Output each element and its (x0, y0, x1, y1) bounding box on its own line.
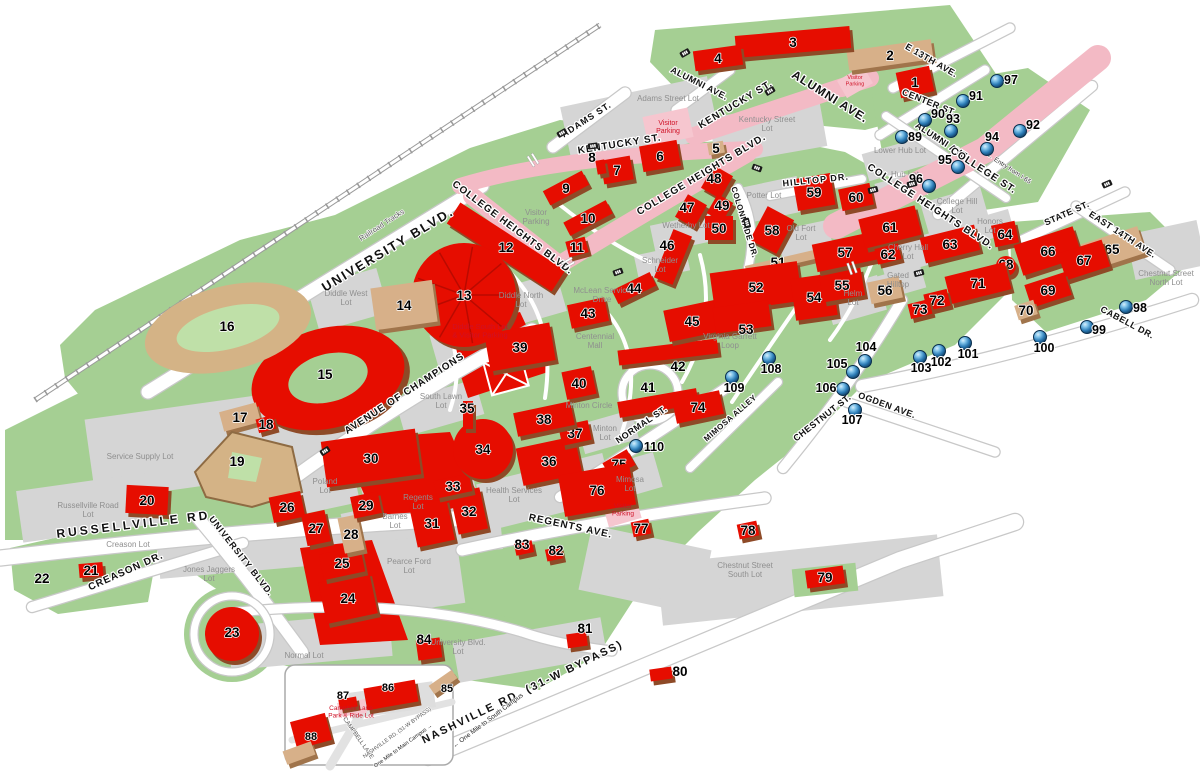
lot-label: Campbell LanePark & Ride Lot (328, 705, 374, 720)
building-number: 81 (577, 621, 593, 636)
building-number: 45 (684, 314, 700, 329)
shuttle-marker-icon (991, 75, 1004, 88)
lot-label-line: Service Supply Lot (107, 452, 174, 461)
lot-label-line: Lot (795, 233, 807, 242)
lot-label-line: Russellville Road (57, 501, 118, 510)
shuttle-marker-number: 102 (931, 355, 952, 369)
building-number: 35 (459, 401, 475, 416)
lot-label-line: Old Fort (787, 224, 817, 233)
lot-label-line: Honors (977, 217, 1003, 226)
building-number: 71 (970, 276, 986, 291)
building-number: 61 (882, 220, 898, 235)
lot-label: Wetherby Lot (662, 221, 710, 230)
lot-label-line: Park & Ride Lot (328, 713, 374, 720)
lot-label-line: Pearce Ford (387, 557, 431, 566)
lot-label-line: South Lawn (420, 392, 462, 401)
lot-label-line: Lot (203, 574, 215, 583)
building-number: 7 (613, 163, 621, 178)
building-number: 52 (748, 280, 763, 295)
building-number: 70 (1018, 303, 1033, 318)
lot-label-line: Lot (847, 298, 859, 307)
shuttle-marker-number: 104 (856, 340, 877, 354)
building-number: 67 (1076, 253, 1091, 268)
shuttle-marker-number: 101 (958, 347, 979, 361)
shuttle-marker-98[interactable]: 98 (1120, 301, 1147, 316)
lot-label-line: Lot (452, 647, 464, 656)
building-number: 41 (640, 380, 656, 395)
lot-label-line: Lot (340, 298, 352, 307)
lot-label-line: Creason Lot (106, 540, 150, 549)
building-number: 87 (337, 690, 349, 702)
building-number: 82 (548, 543, 563, 558)
lot-label-line: Lot (389, 521, 401, 530)
building-number: 3 (789, 35, 797, 50)
shuttle-marker-110[interactable]: 110 (630, 440, 665, 455)
building-22[interactable]: 22 (34, 571, 49, 586)
building-number: 12 (498, 240, 513, 255)
lot-label-line: Diddle West (325, 289, 369, 298)
building-number: 11 (570, 240, 585, 255)
building-number: 23 (224, 625, 240, 640)
building-number: 73 (912, 302, 928, 317)
shuttle-marker-number: 108 (761, 362, 782, 376)
lot-label: Adams Street Lot (637, 94, 700, 103)
lot-label-line: Gated (887, 271, 909, 280)
building-number: 85 (441, 683, 453, 695)
shuttle-marker-89[interactable]: 89 (896, 130, 922, 144)
shuttle-marker-number: 110 (644, 440, 664, 454)
lot-label-line: Lot (508, 495, 520, 504)
building-number: 14 (396, 298, 412, 313)
building-number: 60 (848, 190, 863, 205)
shuttle-marker-number: 99 (1092, 323, 1106, 337)
lot-label: GatedHilltop (887, 271, 910, 289)
building-number: 80 (672, 664, 687, 679)
lot-label-line: Lot (435, 401, 447, 410)
lot-label-line: Visitor (525, 208, 547, 217)
building-number: 18 (258, 417, 274, 432)
shuttle-marker-number: 89 (908, 130, 922, 144)
lot-label-line: McLean Service (573, 286, 631, 295)
lot-label-line: & Visitor Parking (452, 331, 507, 340)
lot-label-line: Lot (515, 300, 527, 309)
lot-label-line: Cherry Hall (888, 243, 928, 252)
lot-label: VisitorParking (846, 75, 865, 88)
building-number: 29 (358, 498, 373, 513)
shuttle-marker-icon (981, 143, 994, 156)
lot-label-line: Schneider (642, 256, 678, 265)
lot-label-line: Minton (593, 424, 617, 433)
building-number: 78 (740, 523, 756, 538)
lot-label-line: Lower Hub Lot (874, 146, 927, 155)
building-number: 20 (139, 493, 154, 508)
building-number: 49 (714, 198, 729, 213)
lot-label-line: Visitor (658, 120, 678, 127)
lot-label-line: Lot (412, 502, 424, 511)
building-number: 4 (714, 51, 722, 66)
building-14[interactable]: 14 (370, 280, 440, 334)
lot-label-line: Kentucky Street (739, 115, 796, 124)
building-number: 16 (219, 319, 235, 334)
building-number: 42 (670, 359, 685, 374)
lot-label-line: Virginia Garrett (703, 332, 757, 341)
building-number: 25 (334, 556, 350, 571)
lot-label-line: Parking (846, 82, 865, 88)
building-78[interactable]: 78 (737, 521, 763, 544)
shuttle-marker-number: 109 (724, 381, 745, 395)
building-number: 58 (764, 223, 780, 238)
road (846, 402, 995, 452)
lot-label-line: Parking (522, 217, 549, 226)
shuttle-marker-icon (630, 440, 643, 453)
shuttle-stop-icon (1101, 179, 1113, 189)
building-number: 33 (445, 479, 461, 494)
lot-label-line: Wetherby Lot (662, 221, 710, 230)
lot-label-line: South Lot (728, 570, 763, 579)
shuttle-marker-icon (945, 125, 958, 138)
building-number: 34 (475, 442, 491, 457)
lot-label-line: Lot (624, 484, 636, 493)
lot-label: Normal Lot (284, 651, 324, 660)
building-number: 9 (562, 181, 570, 196)
building-number: 79 (817, 570, 832, 585)
lot-label-line: Lot (761, 124, 773, 133)
building-number: 69 (1040, 283, 1055, 298)
shuttle-marker-number: 103 (911, 361, 932, 375)
building-number: 24 (340, 591, 356, 606)
building-number: 26 (279, 500, 295, 515)
lot-label-line: Regents (403, 493, 433, 502)
building-number: 28 (343, 527, 359, 542)
building-number: 5 (712, 141, 720, 156)
shuttle-marker-number: 95 (938, 153, 952, 167)
building-number: 30 (363, 451, 378, 466)
building-number: 15 (317, 367, 333, 382)
lot-label-line: College Hill (937, 197, 978, 206)
lot-label-line: Lot (902, 252, 914, 261)
building-number: 36 (541, 454, 557, 469)
lot-label-line: Parking (612, 511, 634, 518)
shuttle-marker-number: 90 (931, 107, 945, 121)
shuttle-marker-number: 107 (842, 413, 863, 427)
lot-label-line: Lot (984, 226, 996, 235)
building-number: 32 (461, 504, 476, 519)
shuttle-marker-icon (923, 180, 936, 193)
lot-label-line: Adams Street Lot (637, 94, 700, 103)
shuttle-marker-icon (957, 95, 970, 108)
lot-label: Minton Circle (566, 401, 613, 410)
lot-label-line: Visitor (614, 503, 633, 510)
building-number: 50 (711, 221, 726, 236)
lot-label-line: Helm (844, 289, 863, 298)
lot-label-line: Diddle South Lot (452, 322, 508, 331)
lot-label-line: Loop (721, 341, 739, 350)
building-number: 31 (424, 516, 440, 531)
campus-map: 1234567891011121314151617181920212223242… (0, 0, 1200, 771)
shuttle-marker-icon (1014, 125, 1027, 138)
building-number: 40 (571, 376, 586, 391)
lot-label: VisitorParking (612, 503, 634, 518)
building-number: 54 (806, 290, 822, 305)
lot-label-line: Minton Circle (566, 401, 613, 410)
building-number: 19 (229, 454, 244, 469)
lot-label: VisitorParking (522, 208, 549, 226)
shuttle-marker-number: 97 (1004, 73, 1018, 87)
lot-label-line: Mall (588, 341, 603, 350)
building-number: 39 (512, 340, 527, 355)
building-number: 76 (589, 483, 605, 498)
lot-label-line: Potter Lot (747, 191, 782, 200)
lot-label: Diddle South Lot& Visitor Parking (452, 322, 508, 340)
shuttle-marker-number: 93 (946, 112, 960, 126)
lot-label: Lower Hub Lot (874, 146, 927, 155)
building-number: 6 (656, 149, 664, 164)
lot-label-line: Centennial (576, 332, 614, 341)
lot-label-line: Lot (951, 206, 963, 215)
shuttle-marker-number: 92 (1026, 118, 1040, 132)
lot-label-line: Campbell Lane (329, 705, 373, 712)
lot-label-line: Diddle North (499, 291, 543, 300)
lot-label-line: North Lot (1150, 278, 1184, 287)
lot-label-line: Lot (319, 486, 331, 495)
shuttle-marker-icon (837, 383, 850, 396)
building-number: 47 (679, 200, 694, 215)
shuttle-marker-97[interactable]: 97 (991, 73, 1018, 88)
lot-label-line: Barnes (382, 512, 407, 521)
building-number: 27 (308, 521, 323, 536)
shuttle-marker-number: 94 (985, 130, 999, 144)
lot-label-line: Jones Jaggers (183, 565, 235, 574)
lot-label-line: Health Services (486, 486, 542, 495)
lot-label: Service Supply Lot (107, 452, 174, 461)
building-number: 64 (997, 227, 1013, 242)
building-number: 38 (536, 412, 552, 427)
shuttle-marker-icon (847, 366, 860, 379)
lot-label-line: Drive (593, 295, 612, 304)
building-number: 43 (580, 306, 596, 321)
building-number: 88 (305, 731, 317, 743)
shuttle-marker-101[interactable]: 101 (958, 337, 979, 362)
building-number: 10 (580, 211, 595, 226)
lot-label-line: Lot (403, 566, 415, 575)
shuttle-marker-number: 91 (969, 89, 983, 103)
shuttle-marker-102[interactable]: 102 (931, 345, 952, 370)
building-number: 66 (1040, 244, 1056, 259)
building-number: 17 (232, 410, 247, 425)
shuttle-marker-number: 98 (1133, 301, 1147, 315)
lot-label: Creason Lot (106, 540, 150, 549)
building-number: 46 (659, 238, 675, 253)
shuttle-marker-106[interactable]: 106 (816, 381, 850, 396)
shuttle-marker-icon (1120, 301, 1133, 314)
building-40[interactable]: 40 (561, 366, 599, 404)
shuttle-marker-number: 105 (827, 357, 848, 371)
lot-label: VisitorParking (656, 120, 680, 135)
building-number: 1 (911, 75, 919, 90)
building-number: 83 (514, 537, 530, 552)
building-number: 86 (382, 682, 394, 694)
lot-label-line: Normal Lot (284, 651, 324, 660)
shuttle-marker-icon (919, 114, 932, 127)
building-number: 63 (942, 237, 958, 252)
building-number: 21 (83, 563, 99, 578)
shuttle-marker-number: 100 (1034, 341, 1055, 355)
lot-label-line: Mimosa (616, 475, 645, 484)
shuttle-marker-100[interactable]: 100 (1034, 331, 1055, 356)
building-number: 22 (34, 571, 49, 586)
shuttle-marker-icon (896, 131, 909, 144)
shuttle-marker-number: 106 (816, 381, 837, 395)
building-number: 57 (837, 245, 852, 260)
lot-label-line: Poland (313, 477, 338, 486)
campus-map-canvas: 1234567891011121314151617181920212223242… (0, 0, 1200, 771)
building-number: 13 (456, 288, 472, 303)
building-number: 59 (806, 185, 821, 200)
lot-label-line: Lot (82, 510, 94, 519)
lot-label-line: Lot (599, 433, 611, 442)
building-number: 2 (886, 48, 894, 63)
building-number: 74 (690, 400, 706, 415)
building-number: 77 (633, 521, 648, 536)
lot-label: Potter Lot (747, 191, 782, 200)
lot-label-line: Chestnut Street (1138, 269, 1194, 278)
lot-label-line: University Blvd. (430, 638, 485, 647)
lot-label-line: Parking (656, 128, 680, 135)
lot-label-line: Visitor (847, 75, 862, 81)
lot-label-line: Chestnut Street (717, 561, 773, 570)
lot-label-line: Hilltop (887, 280, 910, 289)
shuttle-marker-icon (952, 161, 965, 174)
lot-label-line: Lot (654, 265, 666, 274)
shuttle-marker-icon (859, 355, 872, 368)
